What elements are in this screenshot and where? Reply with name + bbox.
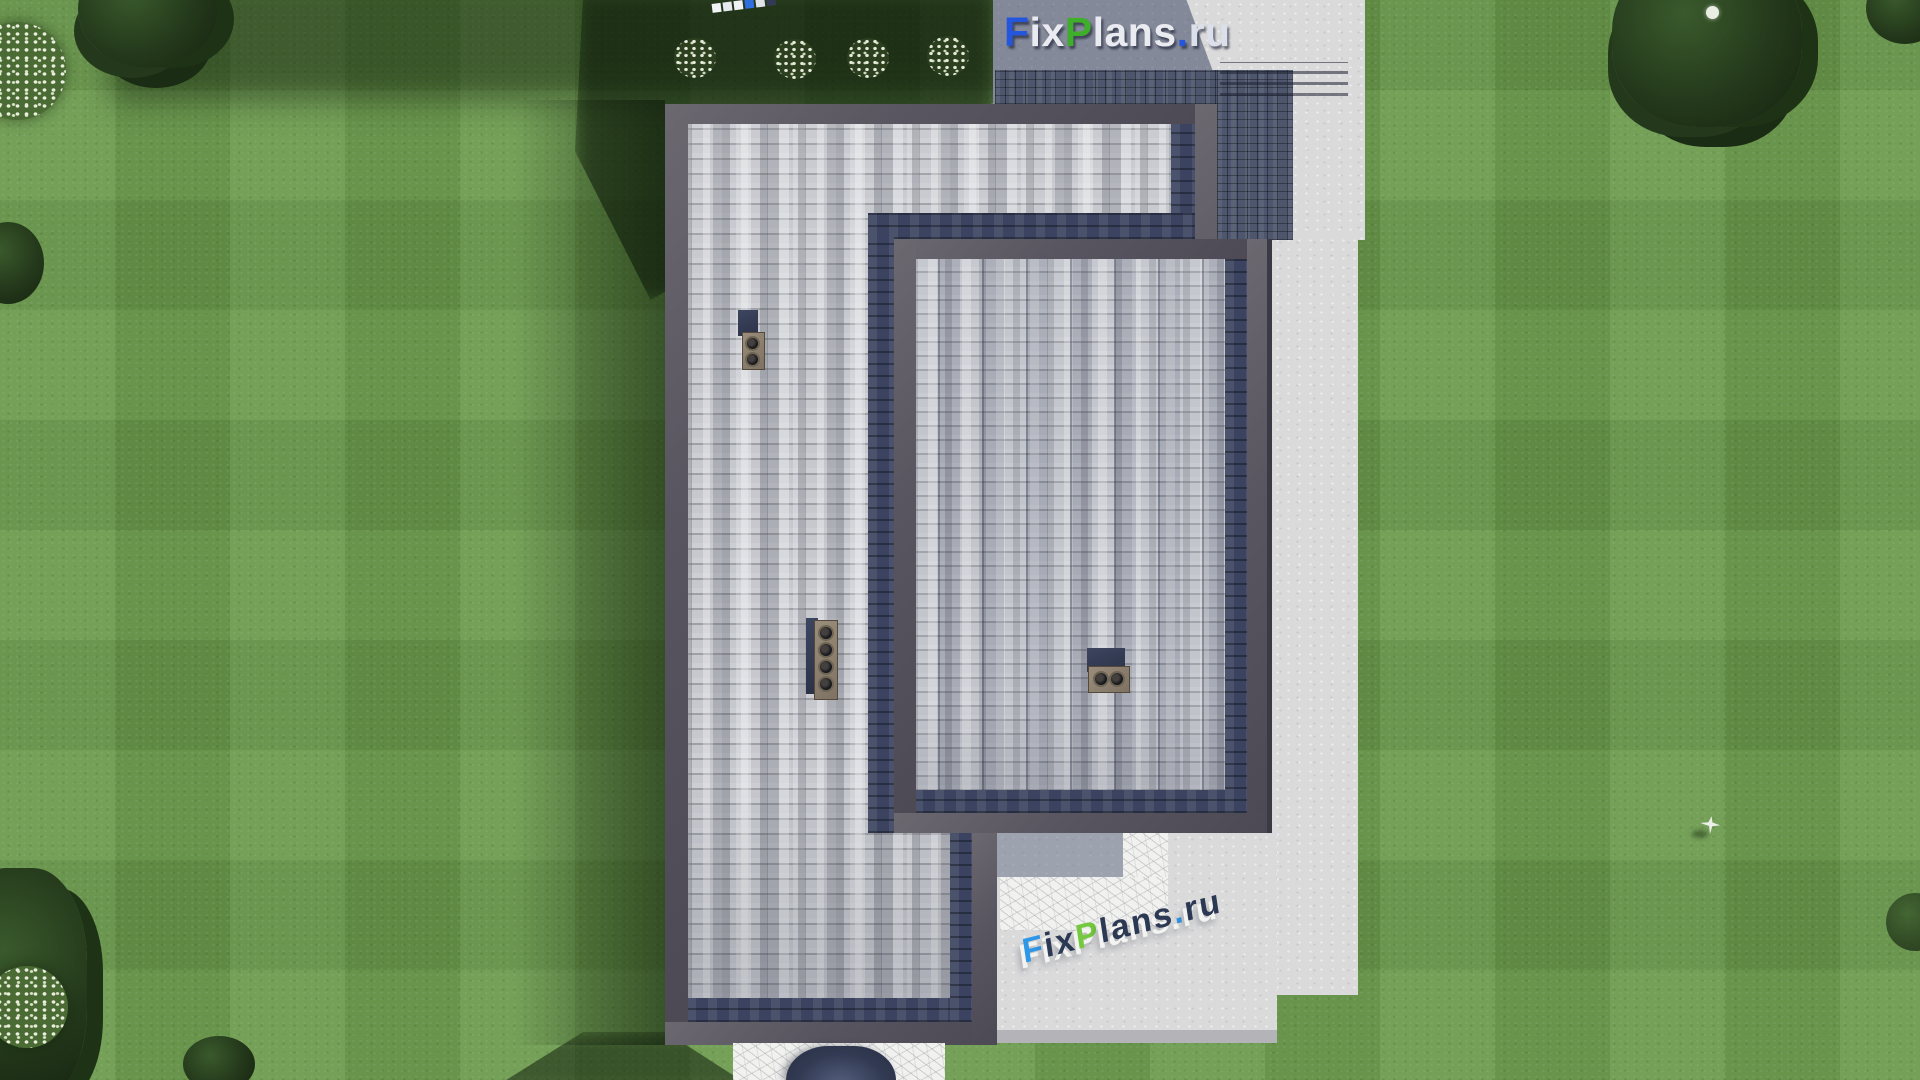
watermark-block [755,0,765,8]
watermark-block [766,0,776,6]
building-shadow-left-band [515,100,665,1045]
shingle-shadow-bottom [687,998,972,1022]
watermark-block [744,0,754,9]
chimney-2-flue-horizontal [1085,648,1129,692]
roof-edge-gap [1267,239,1272,833]
stone-slab-vertical [1123,833,1168,879]
chimney-flue [1109,671,1125,687]
logo-letter: P [1065,9,1093,55]
logo-letter: ix [1030,9,1065,55]
chimney-flue [818,642,834,658]
watermark-logo-top: FixPlans.ru [1004,12,1231,53]
terrace-edge-step [997,1030,1277,1043]
bird-shadow [1692,830,1708,838]
logo-letter: lans [1093,9,1177,55]
chimney-2-flue [738,310,764,370]
chimney-flue [1093,671,1109,687]
shingle-shadow-around-secondary-left [868,234,894,833]
logo-letter: F [1004,9,1030,55]
shingle-shadow-notch [950,833,972,1022]
flower-bush [927,36,969,76]
parapet-left [665,104,688,1045]
watermark-block [722,2,732,12]
concrete-terrace-bottom: FixPlans.ru [997,833,1277,1043]
chimney-flue [818,659,834,675]
roof-shadow-on-terrace [997,833,1123,877]
blossom-spot [1706,6,1719,19]
flower-bush [674,38,716,78]
watermark-block [733,0,743,10]
secondary-roof-shading [894,239,1267,833]
tiled-patio-horizontal [995,70,1217,104]
shingle-shadow-bottom [914,790,1247,813]
shingle-shadow-right [1225,257,1247,813]
watermark-letter: ru [1182,882,1224,929]
secondary-roof [894,239,1267,833]
logo-letter: ru [1189,9,1231,55]
parapet-top [894,239,1267,259]
chimney-flue [818,676,834,692]
concrete-walkway-right [1272,236,1358,995]
flower-bush [847,38,889,78]
parapet-left [894,239,916,833]
shingle-shadow-around-secondary-top [868,213,1217,239]
chimney-4-flue [806,616,836,700]
aerial-render-scene: FixPlans.ru [0,0,1920,1080]
parapet-notch [972,833,997,1045]
flower-bush [774,39,816,79]
chimney-flue [818,625,834,641]
chimney-flue [745,336,760,351]
entrance-steps [1220,62,1348,96]
watermark-block [712,3,722,13]
parapet-bottom [894,813,1267,833]
parapet-bottom [665,1022,997,1045]
chimney-flue [745,352,760,367]
parapet-right [1247,239,1267,833]
parapet-top [665,104,1217,124]
logo-letter: . [1177,9,1189,55]
